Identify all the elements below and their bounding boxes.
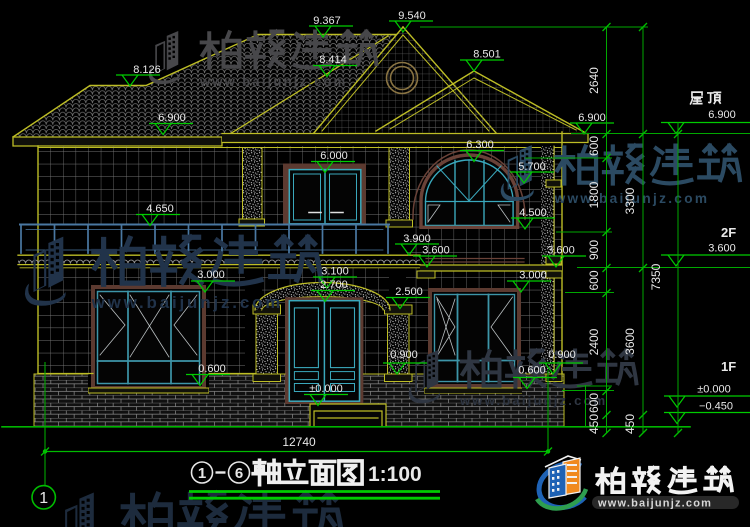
svg-text:4.650: 4.650 bbox=[146, 203, 174, 215]
svg-text:4.500: 4.500 bbox=[519, 207, 547, 219]
svg-text:8.501: 8.501 bbox=[473, 49, 501, 61]
svg-text:600: 600 bbox=[587, 136, 601, 156]
svg-text:5.700: 5.700 bbox=[518, 161, 546, 173]
svg-text:−0.450: −0.450 bbox=[699, 401, 733, 413]
svg-text:0.900: 0.900 bbox=[548, 349, 576, 361]
svg-text:3.600: 3.600 bbox=[547, 245, 575, 257]
svg-text:8.126: 8.126 bbox=[133, 64, 161, 76]
svg-text:450: 450 bbox=[587, 414, 601, 434]
svg-text:450: 450 bbox=[623, 414, 637, 434]
svg-text:6.300: 6.300 bbox=[466, 139, 494, 151]
svg-text:900: 900 bbox=[587, 240, 601, 260]
svg-text:6.900: 6.900 bbox=[578, 112, 606, 124]
svg-text:1:100: 1:100 bbox=[368, 463, 422, 486]
svg-text:2F: 2F bbox=[721, 225, 736, 240]
svg-text:±0.000: ±0.000 bbox=[697, 384, 731, 396]
svg-text:1: 1 bbox=[198, 465, 206, 482]
svg-text:7350: 7350 bbox=[649, 263, 663, 290]
svg-text:600: 600 bbox=[587, 393, 601, 413]
svg-text:3.600: 3.600 bbox=[708, 243, 736, 255]
svg-text:0.600: 0.600 bbox=[198, 363, 226, 375]
svg-text:2.500: 2.500 bbox=[395, 286, 423, 298]
svg-text:3.100: 3.100 bbox=[321, 266, 349, 278]
svg-text:6.000: 6.000 bbox=[320, 150, 348, 162]
svg-text:3.000: 3.000 bbox=[197, 269, 225, 281]
svg-text:0.600: 0.600 bbox=[518, 365, 546, 377]
svg-text:6: 6 bbox=[235, 465, 243, 482]
svg-text:12740: 12740 bbox=[282, 435, 316, 449]
svg-text:600: 600 bbox=[587, 270, 601, 290]
svg-text:2400: 2400 bbox=[587, 328, 601, 355]
svg-text:9.540: 9.540 bbox=[398, 10, 426, 22]
svg-text:9.367: 9.367 bbox=[313, 15, 341, 27]
svg-text:3.900: 3.900 bbox=[403, 233, 431, 245]
svg-text:6.900: 6.900 bbox=[158, 112, 186, 124]
svg-text:6.900: 6.900 bbox=[708, 109, 736, 121]
svg-text:www.baijunjz.com: www.baijunjz.com bbox=[597, 498, 712, 510]
svg-text:0.900: 0.900 bbox=[390, 349, 418, 361]
svg-text:3.600: 3.600 bbox=[422, 245, 450, 257]
svg-text:±0.000: ±0.000 bbox=[309, 383, 343, 395]
svg-text:3600: 3600 bbox=[623, 328, 637, 355]
svg-text:1: 1 bbox=[39, 490, 48, 507]
svg-text:3300: 3300 bbox=[623, 187, 637, 214]
svg-text:1F: 1F bbox=[721, 359, 736, 374]
svg-text:3.000: 3.000 bbox=[519, 270, 547, 282]
svg-text:1800: 1800 bbox=[587, 181, 601, 208]
svg-text:8.414: 8.414 bbox=[319, 54, 347, 66]
svg-text:2.700: 2.700 bbox=[320, 279, 348, 291]
svg-text:2640: 2640 bbox=[587, 67, 601, 94]
